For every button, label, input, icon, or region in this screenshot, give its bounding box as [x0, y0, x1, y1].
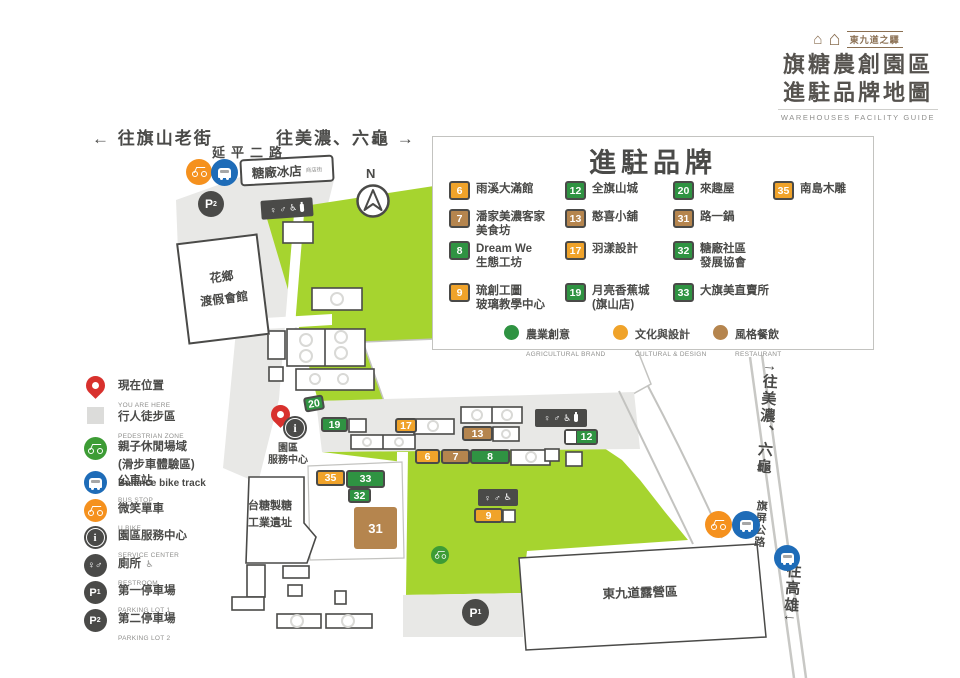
map-marker-17: 17 — [395, 418, 417, 433]
compass-icon — [354, 182, 392, 220]
brand-item: 33 大旗美直賣所 — [673, 283, 769, 302]
parking1-icon: P1 — [84, 581, 107, 604]
factory-label: 台糖製糖 工業遺址 — [248, 498, 292, 531]
restroom-icon: ♀♂ — [84, 554, 107, 577]
nav-to-meinong: 往美濃、六龜 → — [276, 124, 416, 149]
map-marker-12: 12 — [564, 429, 598, 445]
brand-num: 6 — [449, 181, 470, 200]
facility-map-poster: ← 往旗山老街 往美濃、六龜 → 延平二路 N ⌂ ⌂ 東九道之驛 旗糖農創園區… — [0, 0, 960, 678]
house-icon: ⌂ — [813, 31, 822, 48]
restroom-box-center: ♀♂♿ — [535, 409, 587, 427]
brand-item: 13 憨喜小舖 — [565, 209, 638, 228]
brand-item: 19 月亮香蕉城 (旗山店) — [565, 283, 650, 313]
brand-item: 20 來趣屋 — [673, 181, 735, 200]
nav-to-qishan: ← 往旗山老街 — [92, 124, 213, 149]
parking2-map-icon: P2 — [198, 191, 224, 217]
parking1-map-icon: P1 — [462, 599, 489, 626]
bus-stop-icon — [84, 471, 107, 494]
pedestrian-zone-icon — [87, 407, 104, 424]
to-kaohsiung-vertical: 往高雄↓ — [779, 562, 804, 624]
green-dot-icon — [504, 325, 519, 340]
balance-bike-map-icon — [431, 546, 449, 564]
bus-stop-map-icon-east — [732, 511, 760, 539]
map-marker-6: 6 — [415, 449, 440, 464]
ice-shop-box: 糖廠冰店 商店街 — [239, 155, 334, 187]
brand-item: 9 琉創工圖 玻璃教學中心 — [449, 283, 545, 313]
brand-item: 12 全旗山城 — [565, 181, 638, 200]
map-marker-9: 9 — [474, 508, 503, 523]
yellow-dot-icon — [613, 325, 628, 340]
brand-item: 8 Dream We 生態工坊 — [449, 241, 532, 271]
map-marker-7: 7 — [441, 449, 470, 464]
brand-item: 7 潘家美濃客家 美食坊 — [449, 209, 545, 239]
category-cultural: 文化與設計 CULTURAL & DESIGN — [613, 325, 707, 361]
brand-panel-title: 進駐品牌 — [433, 141, 873, 180]
map-marker-35: 35 — [316, 470, 345, 486]
u-bike-map-icon-east — [705, 511, 732, 538]
title-block: ⌂ ⌂ 東九道之驛 旗糖農創園區 進駐品牌地圖 WAREHOUSES FACIL… — [778, 28, 938, 122]
u-bike-map-icon-north — [186, 159, 212, 185]
service-center-label: 園區 服務中心 — [262, 443, 314, 467]
logo-row: ⌂ ⌂ 東九道之驛 — [778, 28, 938, 51]
service-center-map-icon: i — [283, 416, 307, 440]
brand-panel: 進駐品牌 6 雨溪大滿館 12 全旗山城 20 來趣屋 35 南島木雕 7 潘家… — [432, 136, 874, 350]
parking2-icon: P2 — [84, 609, 107, 632]
category-restaurant: 風格餐飲 RESTAURANT — [713, 325, 782, 361]
bus-stop-map-icon-north — [211, 159, 238, 186]
restroom-box-south: ♀♂♿ — [478, 489, 518, 506]
map-marker-8: 8 — [470, 449, 510, 464]
brand-item: 6 雨溪大滿館 — [449, 181, 534, 200]
compass-n-label: N — [366, 166, 375, 181]
poster-subtitle: WAREHOUSES FACILITY GUIDE — [778, 109, 938, 122]
nursing-icon — [574, 414, 578, 422]
brand-item: 31 路一鍋 — [673, 209, 735, 228]
category-agricultural: 農業創意 AGRICULTURAL BRAND — [504, 325, 605, 361]
restroom-mini-icons: ♿ — [145, 559, 153, 569]
map-marker-13: 13 — [462, 426, 493, 441]
brand-item: 35 南島木雕 — [773, 181, 846, 200]
nursing-icon — [300, 203, 305, 211]
legend-parking-2: P2 第二停車場PARKING LOT 2 — [82, 609, 176, 645]
restroom-box-north: ♀♂♿ — [260, 197, 313, 220]
pin-icon — [82, 372, 109, 399]
map-marker-33: 33 — [346, 470, 385, 488]
resort-building: 花鄉 渡假會館 — [176, 233, 270, 344]
brand-item: 17 羽漾設計 — [565, 241, 638, 260]
brown-dot-icon — [713, 325, 728, 340]
balance-bike-icon — [84, 437, 107, 460]
map-marker-31: 31 — [354, 507, 397, 549]
map-marker-32: 32 — [348, 488, 371, 503]
service-center-icon: i — [84, 526, 107, 549]
brand-mini-label: 東九道之驛 — [847, 31, 903, 48]
poster-title-line1: 旗糖農創園區 — [778, 51, 938, 79]
brand-item: 32 糖廠社區 發展協會 — [673, 241, 746, 271]
u-bike-icon — [84, 499, 107, 522]
bus-stop-map-icon-highway — [774, 545, 800, 571]
map-marker-19: 19 — [321, 417, 348, 432]
poster-title-line2: 進駐品牌地圖 — [778, 79, 938, 107]
house-icon: ⌂ — [828, 28, 840, 51]
